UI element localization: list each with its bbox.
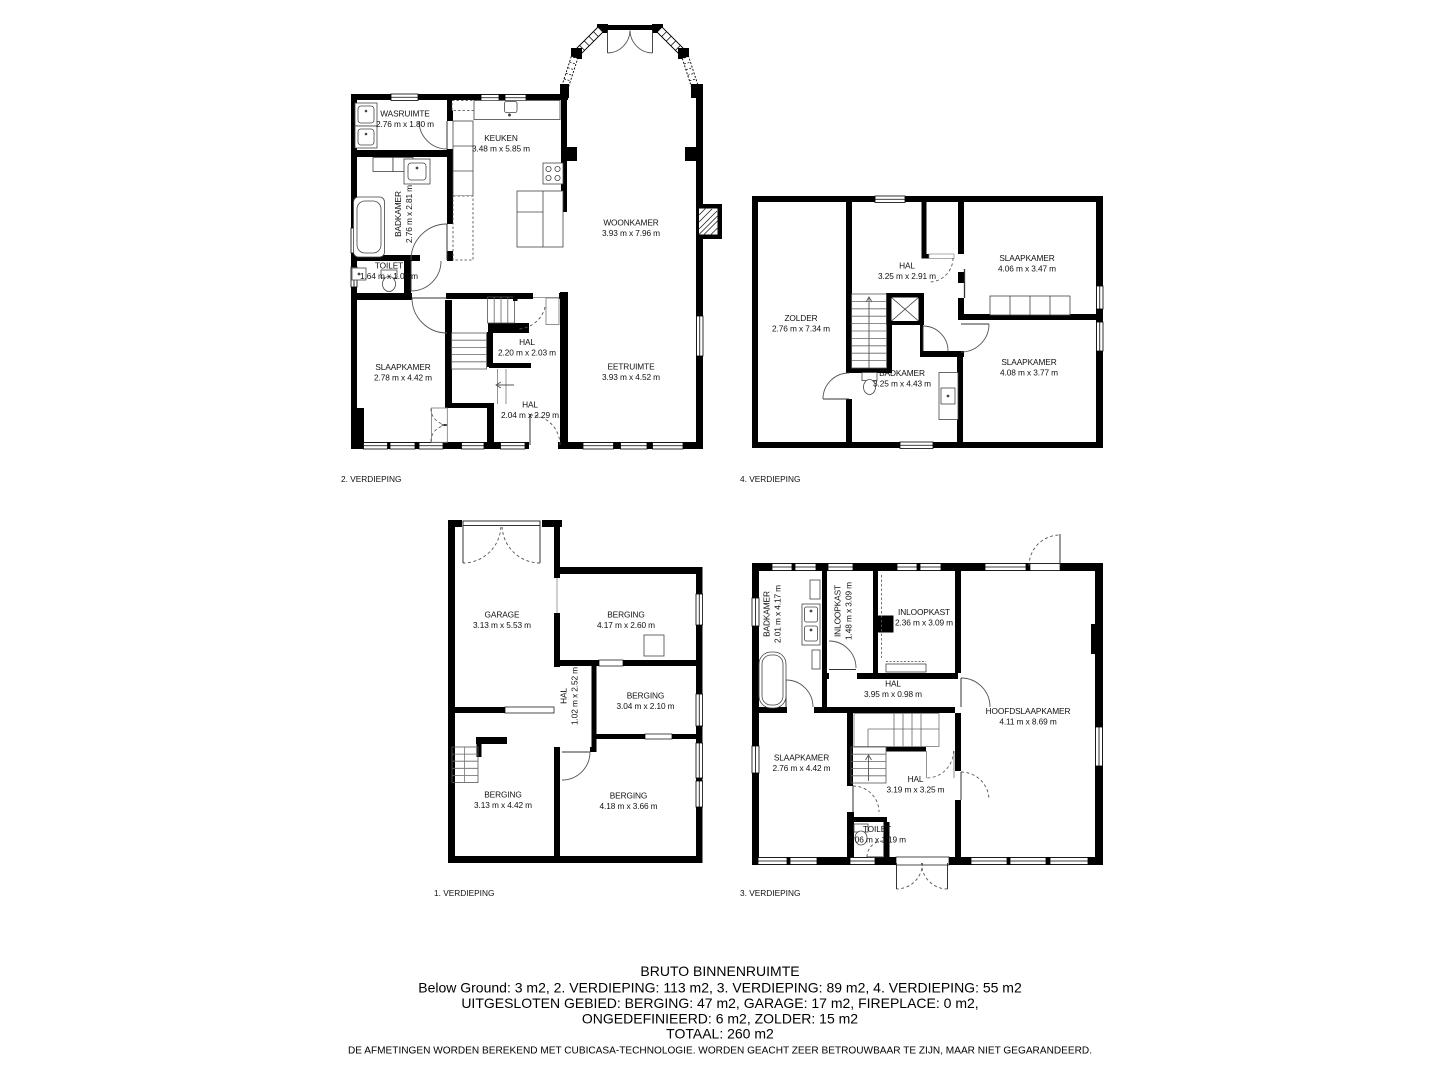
svg-text:HOOFDSLAAPKAMER: HOOFDSLAAPKAMER bbox=[986, 706, 1071, 716]
svg-text:KEUKEN: KEUKEN bbox=[484, 133, 518, 143]
svg-text:BERGING: BERGING bbox=[484, 790, 522, 800]
svg-text:TOILET: TOILET bbox=[375, 261, 403, 271]
svg-text:EETRUIMTE: EETRUIMTE bbox=[607, 362, 655, 372]
svg-text:3.13 m x 5.53 m: 3.13 m x 5.53 m bbox=[473, 620, 531, 630]
svg-text:SLAAPKAMER: SLAAPKAMER bbox=[999, 253, 1054, 263]
svg-text:BADKAMER: BADKAMER bbox=[762, 591, 772, 637]
svg-text:HAL: HAL bbox=[519, 337, 535, 347]
svg-text:3.25 m x 2.91 m: 3.25 m x 2.91 m bbox=[878, 271, 936, 281]
svg-text:2.76 m x 7.34 m: 2.76 m x 7.34 m bbox=[772, 324, 830, 334]
svg-text:2.76 m x 4.42 m: 2.76 m x 4.42 m bbox=[773, 763, 831, 773]
svg-text:2.36 m x 3.09 m: 2.36 m x 3.09 m bbox=[895, 618, 953, 628]
svg-text:3.48 m x 5.85 m: 3.48 m x 5.85 m bbox=[472, 144, 530, 154]
svg-text:4.06 m x 3.47 m: 4.06 m x 3.47 m bbox=[998, 264, 1056, 274]
svg-text:3. VERDIEPING: 3. VERDIEPING bbox=[740, 888, 800, 898]
svg-text:DE AFMETINGEN WORDEN BEREKEND: DE AFMETINGEN WORDEN BEREKEND MET CUBICA… bbox=[348, 1046, 1092, 1057]
svg-text:SLAAPKAMER: SLAAPKAMER bbox=[1001, 357, 1056, 367]
svg-text:INLOOPKAST: INLOOPKAST bbox=[833, 585, 843, 637]
svg-text:HAL: HAL bbox=[885, 679, 901, 689]
svg-text:BERGING: BERGING bbox=[607, 610, 645, 620]
svg-text:4.11 m x 8.69 m: 4.11 m x 8.69 m bbox=[999, 717, 1057, 727]
svg-text:TOILET: TOILET bbox=[863, 824, 891, 834]
svg-text:1.48 m x 3.09 m: 1.48 m x 3.09 m bbox=[843, 582, 853, 640]
svg-text:2.78 m x 4.42 m: 2.78 m x 4.42 m bbox=[374, 373, 432, 383]
svg-text:3.04 m x 2.10 m: 3.04 m x 2.10 m bbox=[617, 701, 675, 711]
svg-text:2.76 m x 2.81 m: 2.76 m x 2.81 m bbox=[404, 185, 414, 243]
svg-text:4.08 m x 3.77 m: 4.08 m x 3.77 m bbox=[1000, 368, 1058, 378]
svg-text:3.93 m x 7.96 m: 3.93 m x 7.96 m bbox=[602, 228, 660, 238]
svg-text:INLOOPKAST: INLOOPKAST bbox=[898, 607, 950, 617]
svg-text:2.76 m x 1.80 m: 2.76 m x 1.80 m bbox=[376, 119, 434, 129]
svg-text:ZOLDER: ZOLDER bbox=[784, 313, 817, 323]
svg-text:1.64 m x 1.03 m: 1.64 m x 1.03 m bbox=[360, 271, 418, 281]
svg-text:HAL: HAL bbox=[522, 400, 538, 410]
svg-text:ONGEDEFINIEERD: 6 m2, ZOLDER:: ONGEDEFINIEERD: 6 m2, ZOLDER: 15 m2 bbox=[582, 1011, 858, 1027]
svg-text:HAL: HAL bbox=[559, 688, 569, 704]
svg-text:4.18 m x 3.66 m: 4.18 m x 3.66 m bbox=[600, 801, 658, 811]
svg-text:TOTAAL: 260 m2: TOTAAL: 260 m2 bbox=[666, 1026, 774, 1042]
svg-text:1.02 m x 2.52 m: 1.02 m x 2.52 m bbox=[569, 667, 579, 725]
svg-text:SLAAPKAMER: SLAAPKAMER bbox=[375, 362, 430, 372]
svg-text:HAL: HAL bbox=[899, 261, 915, 271]
svg-text:BERGING: BERGING bbox=[627, 691, 665, 701]
svg-text:BRUTO BINNENRUIMTE: BRUTO BINNENRUIMTE bbox=[640, 963, 799, 979]
svg-text:UITGESLOTEN GEBIED: BERGING: 4: UITGESLOTEN GEBIED: BERGING: 47 m2, GARA… bbox=[461, 995, 978, 1011]
svg-text:3.93 m x 4.52 m: 3.93 m x 4.52 m bbox=[602, 372, 660, 382]
svg-text:BERGING: BERGING bbox=[610, 791, 648, 801]
svg-text:BADKAMER: BADKAMER bbox=[393, 191, 403, 237]
svg-text:4. VERDIEPING: 4. VERDIEPING bbox=[740, 474, 800, 484]
svg-text:1.06 m x 1.19 m: 1.06 m x 1.19 m bbox=[848, 835, 906, 845]
svg-text:3.95 m x 0.98 m: 3.95 m x 0.98 m bbox=[864, 689, 922, 699]
svg-text:2. VERDIEPING: 2. VERDIEPING bbox=[341, 474, 401, 484]
svg-text:SLAAPKAMER: SLAAPKAMER bbox=[774, 753, 829, 763]
svg-text:GARAGE: GARAGE bbox=[485, 610, 520, 620]
svg-text:2.20 m x 2.03 m: 2.20 m x 2.03 m bbox=[498, 348, 556, 358]
svg-text:2.01 m x 4.17 m: 2.01 m x 4.17 m bbox=[772, 585, 782, 643]
svg-text:3.13 m x 4.42 m: 3.13 m x 4.42 m bbox=[474, 800, 532, 810]
svg-text:Below Ground: 3 m2, 2. VERDIEP: Below Ground: 3 m2, 2. VERDIEPING: 113 m… bbox=[418, 980, 1022, 996]
svg-text:WASRUIMTE: WASRUIMTE bbox=[380, 109, 430, 119]
svg-text:1. VERDIEPING: 1. VERDIEPING bbox=[434, 888, 494, 898]
svg-text:4.17 m x 2.60 m: 4.17 m x 2.60 m bbox=[597, 620, 655, 630]
svg-text:HAL: HAL bbox=[908, 774, 924, 784]
svg-text:2.04 m x 2.29 m: 2.04 m x 2.29 m bbox=[501, 410, 559, 420]
svg-text:3.25 m x 4.43 m: 3.25 m x 4.43 m bbox=[873, 379, 931, 389]
svg-text:BADKAMER: BADKAMER bbox=[879, 368, 925, 378]
svg-text:3.19 m x 3.25 m: 3.19 m x 3.25 m bbox=[887, 785, 945, 795]
svg-text:WOONKAMER: WOONKAMER bbox=[603, 218, 658, 228]
